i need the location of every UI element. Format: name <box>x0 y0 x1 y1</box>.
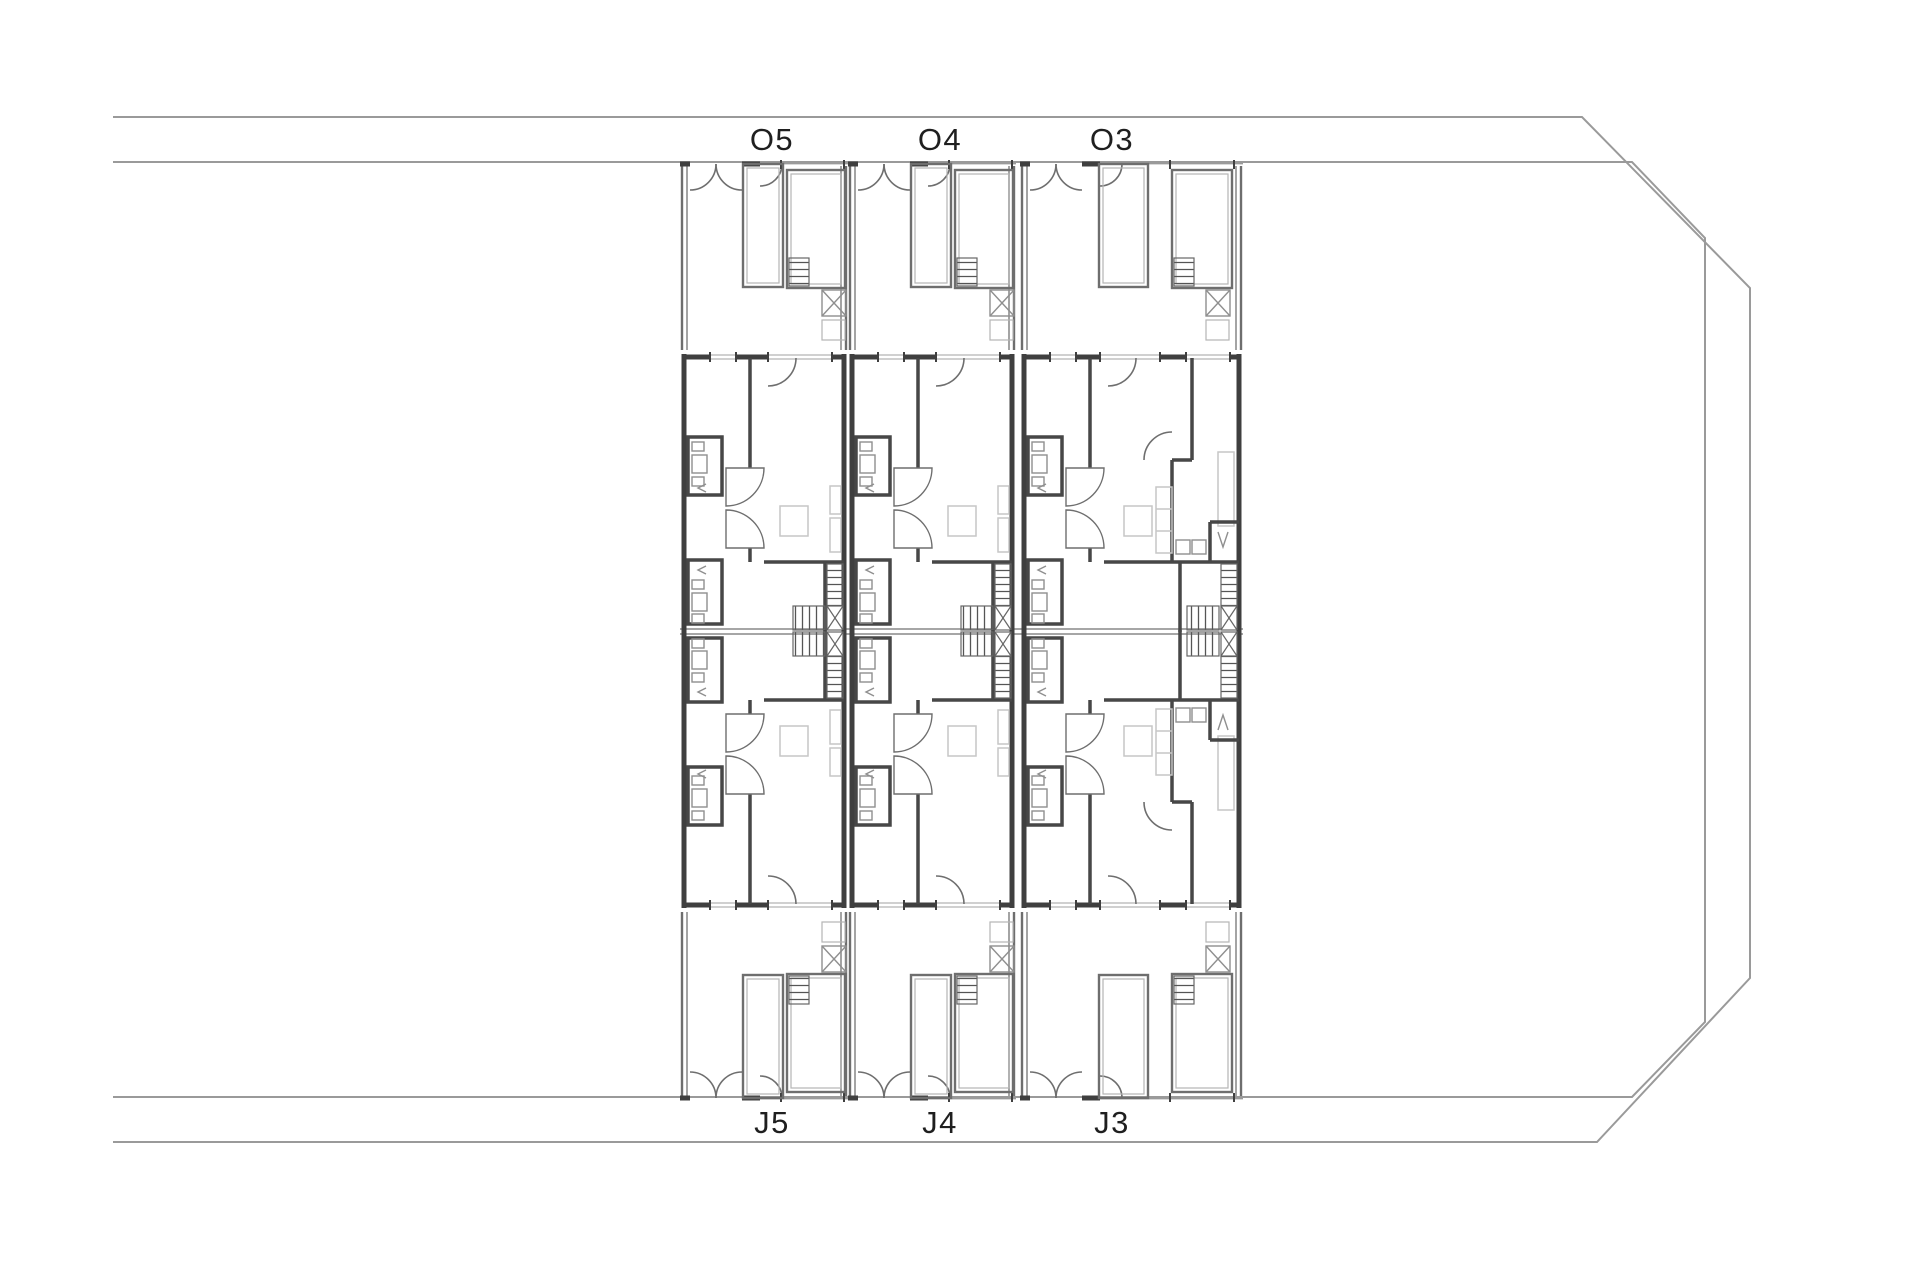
unit-label-top-1: O5 <box>750 122 794 157</box>
unit-label-bottom-3: J3 <box>1094 1105 1130 1140</box>
unit-label-bottom-1: J5 <box>754 1105 790 1140</box>
unit-label-bottom-2: J4 <box>922 1105 958 1140</box>
unit-label-top-3: O3 <box>1090 122 1134 157</box>
floor-plan-page: O5 O4 O3 J5 J4 J3 <box>0 0 1920 1280</box>
floor-plan-canvas: O5 O4 O3 J5 J4 J3 <box>0 0 1920 1280</box>
unit-label-top-2: O4 <box>918 122 962 157</box>
